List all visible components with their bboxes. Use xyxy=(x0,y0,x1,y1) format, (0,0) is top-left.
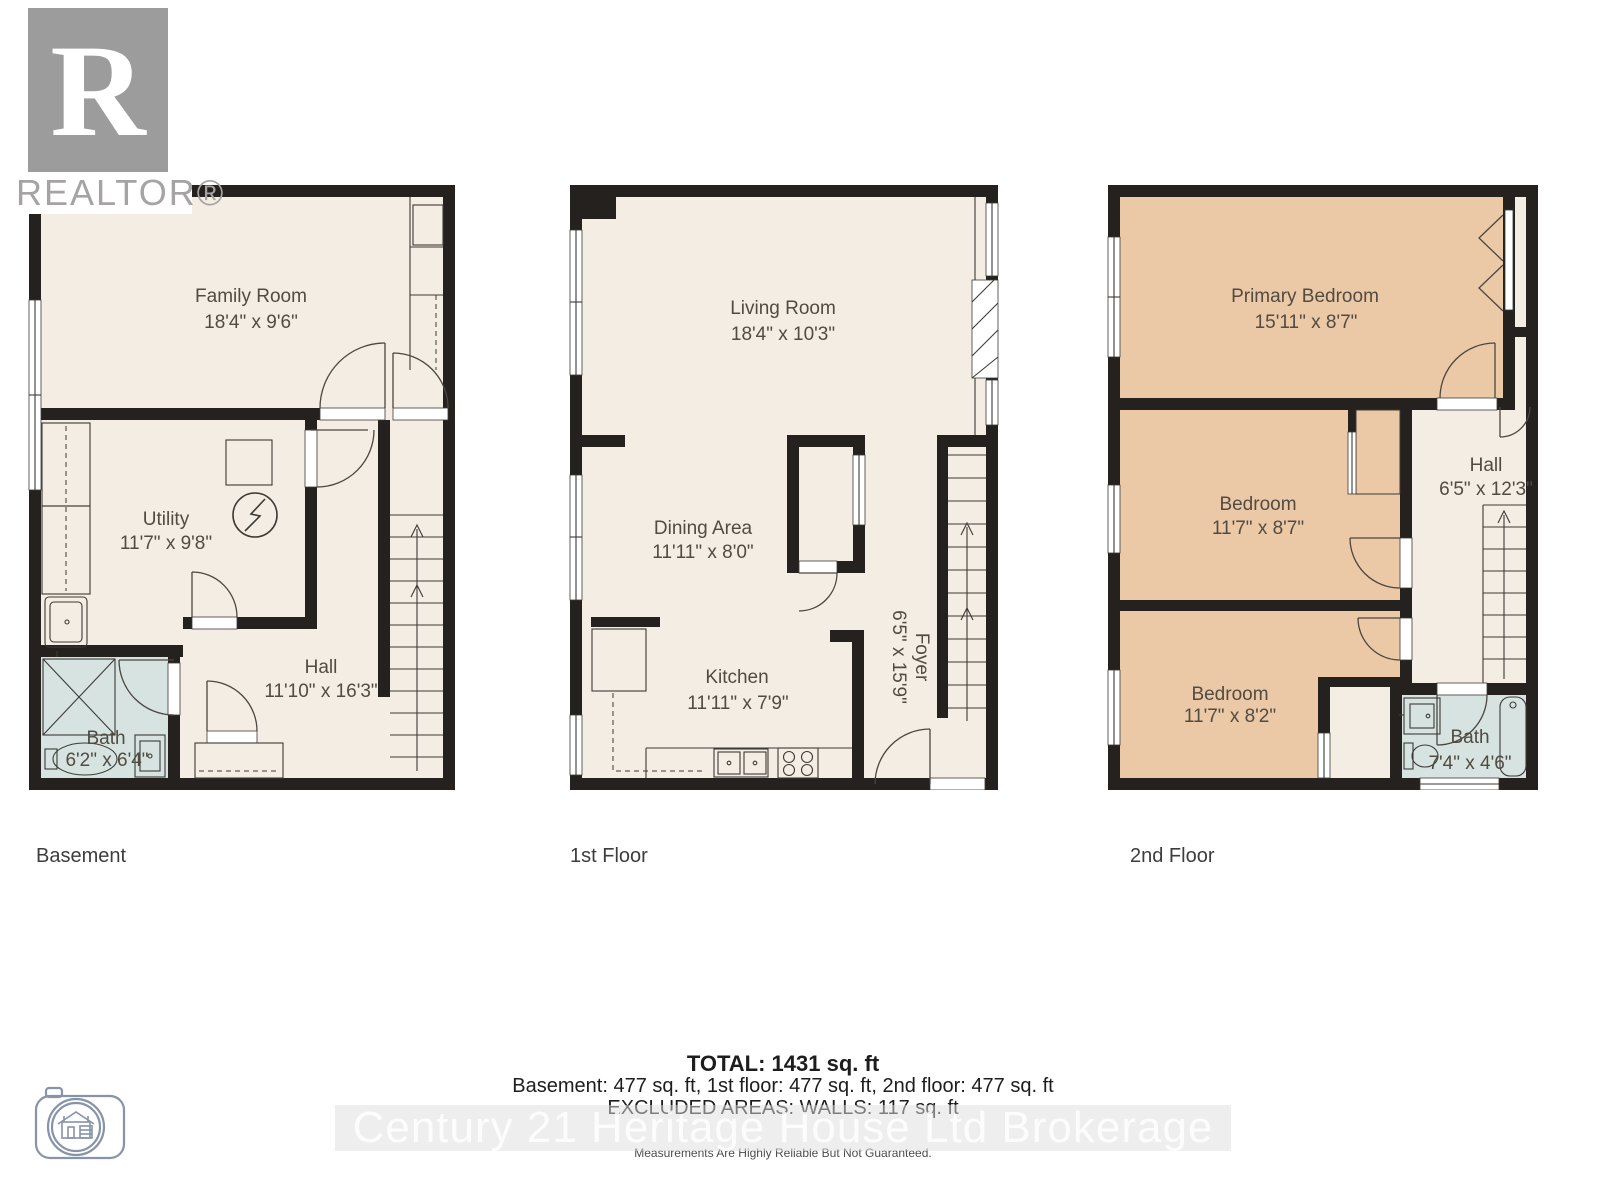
room-label-dining-area: Dining Area xyxy=(654,518,753,539)
realtor-logo-icon: R xyxy=(28,8,168,172)
disclaimer-text: Measurements Are Highly Reliable But Not… xyxy=(0,1146,1566,1160)
room-dims-kitchen: 11'11" x 7'9" xyxy=(687,693,788,714)
room-label-hall-basement: Hall xyxy=(305,657,338,678)
basement-floor-plan: Family Room 18'4" x 9'6" Utility 11'7" x… xyxy=(27,183,457,790)
floor-label-1st: 1st Floor xyxy=(570,845,648,868)
room-dims-foyer: 6'5" x 15'9" xyxy=(888,610,909,704)
basement-window xyxy=(29,300,41,490)
room-dims-family-room: 18'4" x 9'6" xyxy=(204,312,298,333)
room-label-bedroom-2: Bedroom xyxy=(1219,494,1296,515)
room-dims-bedroom-2: 11'7" x 8'7" xyxy=(1212,518,1304,539)
room-label-bath-basement: Bath xyxy=(86,728,125,749)
room-dims-living-room: 18'4" x 10'3" xyxy=(731,324,835,345)
room-label-utility: Utility xyxy=(143,509,190,530)
total-area-text: TOTAL: 1431 sq. ft xyxy=(0,1052,1566,1075)
room-label-primary-bedroom: Primary Bedroom xyxy=(1231,286,1379,307)
room-label-foyer: Foyer xyxy=(911,633,932,682)
room-label-hall-2nd: Hall xyxy=(1470,455,1503,476)
first-floor-plan: Living Room 18'4" x 10'3" Dining Area 11… xyxy=(568,183,1000,790)
room-label-kitchen: Kitchen xyxy=(705,667,768,688)
floor-plan-sheet: R REALTOR® xyxy=(0,0,1600,1200)
room-dims-hall-2nd: 6'5" x 12'3" xyxy=(1439,479,1533,500)
second-floor-plan: Primary Bedroom 15'11" x 8'7" Bedroom 11… xyxy=(1106,183,1540,790)
room-label-bath-2nd: Bath xyxy=(1450,727,1489,748)
room-dims-dining-area: 11'11" x 8'0" xyxy=(652,542,753,563)
realtor-logo-text: REALTOR® xyxy=(12,172,192,214)
room-dims-bedroom-3: 11'7" x 8'2" xyxy=(1184,706,1276,727)
room-label-living-room: Living Room xyxy=(730,298,836,319)
room-dims-bath-2nd: 7'4" x 4'6" xyxy=(1428,753,1511,774)
floor-areas-text: Basement: 477 sq. ft, 1st floor: 477 sq.… xyxy=(0,1075,1566,1097)
realtor-logo-letter: R xyxy=(50,14,145,167)
room-label-family-room: Family Room xyxy=(195,286,307,307)
room-dims-primary-bedroom: 15'11" x 8'7" xyxy=(1255,312,1358,333)
room-dims-bath-basement: 6'2" x 6'4" xyxy=(65,750,148,771)
floor-label-basement: Basement xyxy=(36,845,126,868)
room-dims-utility: 11'7" x 9'8" xyxy=(120,533,212,554)
room-dims-hall-basement: 11'10" x 16'3" xyxy=(264,681,377,702)
excluded-areas-text: EXCLUDED AREAS: WALLS: 117 sq. ft xyxy=(0,1097,1566,1119)
floor-label-2nd: 2nd Floor xyxy=(1130,845,1215,868)
room-label-bedroom-3: Bedroom xyxy=(1191,684,1268,705)
area-summary: TOTAL: 1431 sq. ft Basement: 477 sq. ft,… xyxy=(0,1052,1566,1119)
